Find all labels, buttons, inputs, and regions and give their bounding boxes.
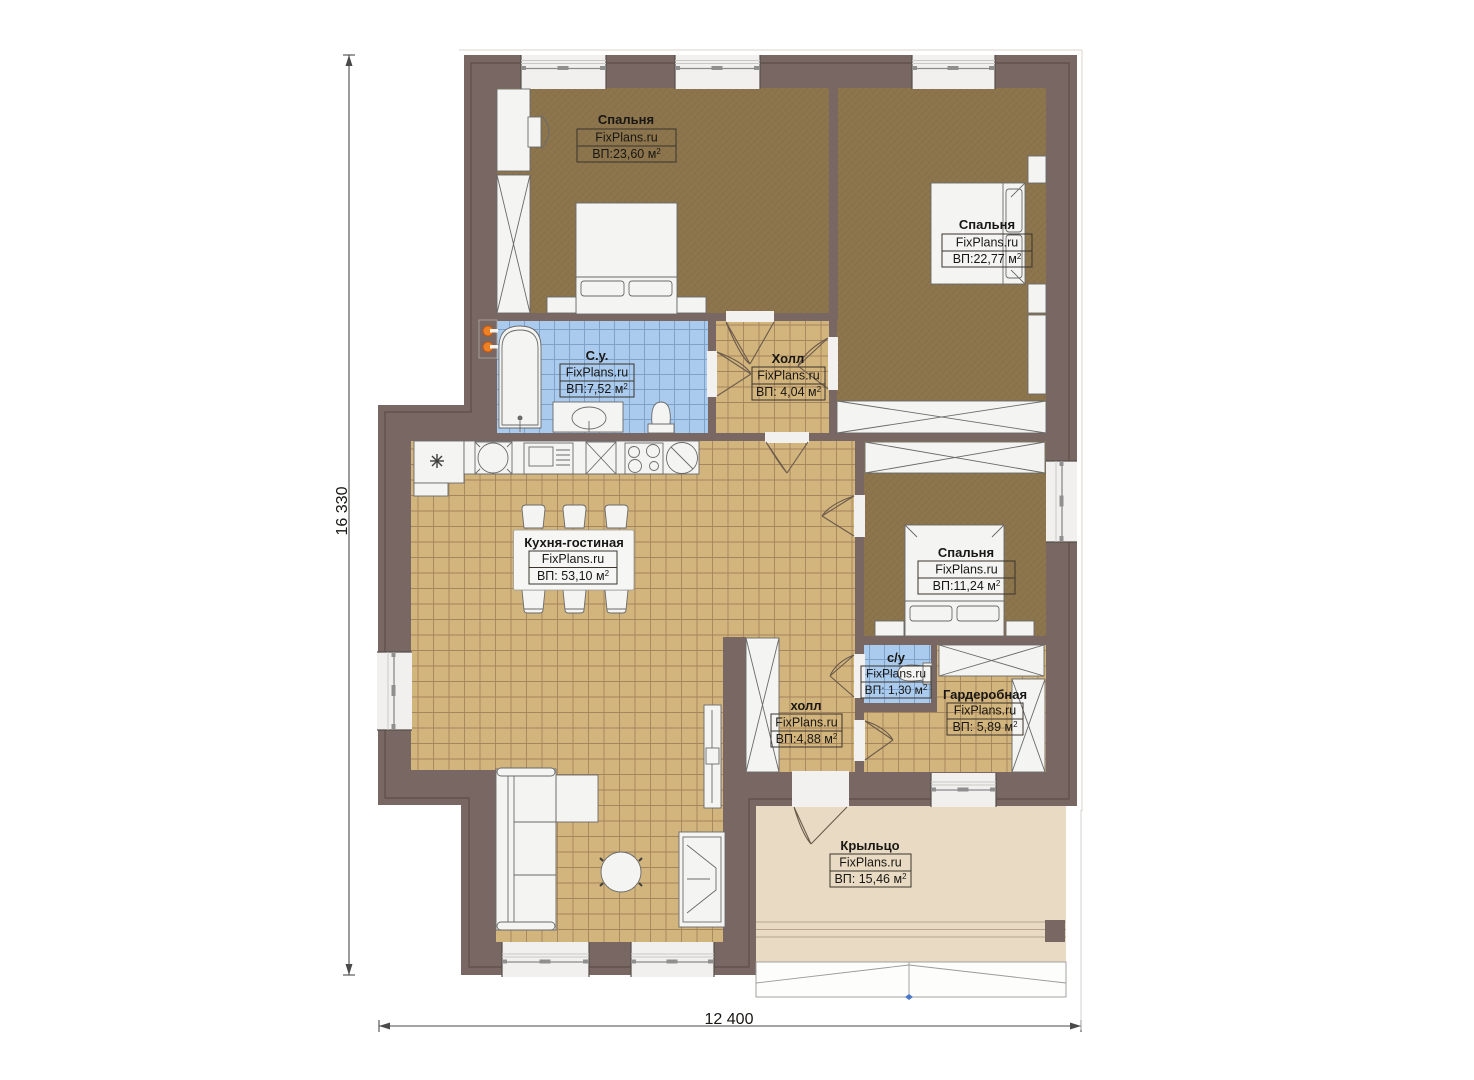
svg-text:ВП: 15,46 м2: ВП: 15,46 м2 bbox=[834, 872, 907, 886]
svg-text:ВП:23,60 м2: ВП:23,60 м2 bbox=[592, 147, 661, 161]
svg-text:Спальня: Спальня bbox=[959, 217, 1015, 232]
svg-text:Спальня: Спальня bbox=[938, 545, 994, 560]
svg-text:холл: холл bbox=[790, 698, 821, 713]
svg-text:ВП: 5,89 м2: ВП: 5,89 м2 bbox=[952, 720, 1018, 734]
svg-text:ВП:11,24 м2: ВП:11,24 м2 bbox=[933, 579, 1001, 593]
svg-text:ВП:7,52 м2: ВП:7,52 м2 bbox=[566, 382, 628, 396]
svg-text:с/у: с/у bbox=[887, 650, 906, 665]
svg-text:С.у.: С.у. bbox=[586, 348, 609, 363]
svg-text:FixPlans.ru: FixPlans.ru bbox=[935, 563, 998, 577]
svg-text:Кухня-гостиная: Кухня-гостиная bbox=[524, 535, 624, 550]
svg-text:12 400: 12 400 bbox=[705, 1011, 754, 1028]
svg-text:Гардеробная: Гардеробная bbox=[943, 687, 1027, 702]
svg-text:ВП:4,88 м2: ВП:4,88 м2 bbox=[776, 732, 838, 746]
svg-text:FixPlans.ru: FixPlans.ru bbox=[839, 856, 902, 870]
svg-text:FixPlans.ru: FixPlans.ru bbox=[566, 366, 629, 380]
svg-text:FixPlans.ru: FixPlans.ru bbox=[866, 667, 926, 681]
svg-text:FixPlans.ru: FixPlans.ru bbox=[775, 716, 838, 730]
svg-text:ВП: 4,04 м2: ВП: 4,04 м2 bbox=[756, 385, 822, 399]
svg-text:FixPlans.ru: FixPlans.ru bbox=[757, 369, 820, 383]
svg-text:ВП: 1,30 м2: ВП: 1,30 м2 bbox=[865, 683, 928, 697]
svg-text:FixPlans.ru: FixPlans.ru bbox=[954, 704, 1017, 718]
svg-text:ВП:22,77 м2: ВП:22,77 м2 bbox=[953, 252, 1022, 266]
svg-text:FixPlans.ru: FixPlans.ru bbox=[956, 236, 1019, 250]
svg-text:Холл: Холл bbox=[772, 351, 805, 366]
svg-text:ВП: 53,10 м2: ВП: 53,10 м2 bbox=[537, 569, 610, 583]
svg-text:FixPlans.ru: FixPlans.ru bbox=[595, 131, 658, 145]
svg-text:Спальня: Спальня bbox=[598, 112, 654, 127]
svg-text:Крыльцо: Крыльцо bbox=[840, 838, 899, 853]
svg-text:FixPlans.ru: FixPlans.ru bbox=[542, 552, 605, 566]
svg-text:16 330: 16 330 bbox=[334, 486, 351, 535]
